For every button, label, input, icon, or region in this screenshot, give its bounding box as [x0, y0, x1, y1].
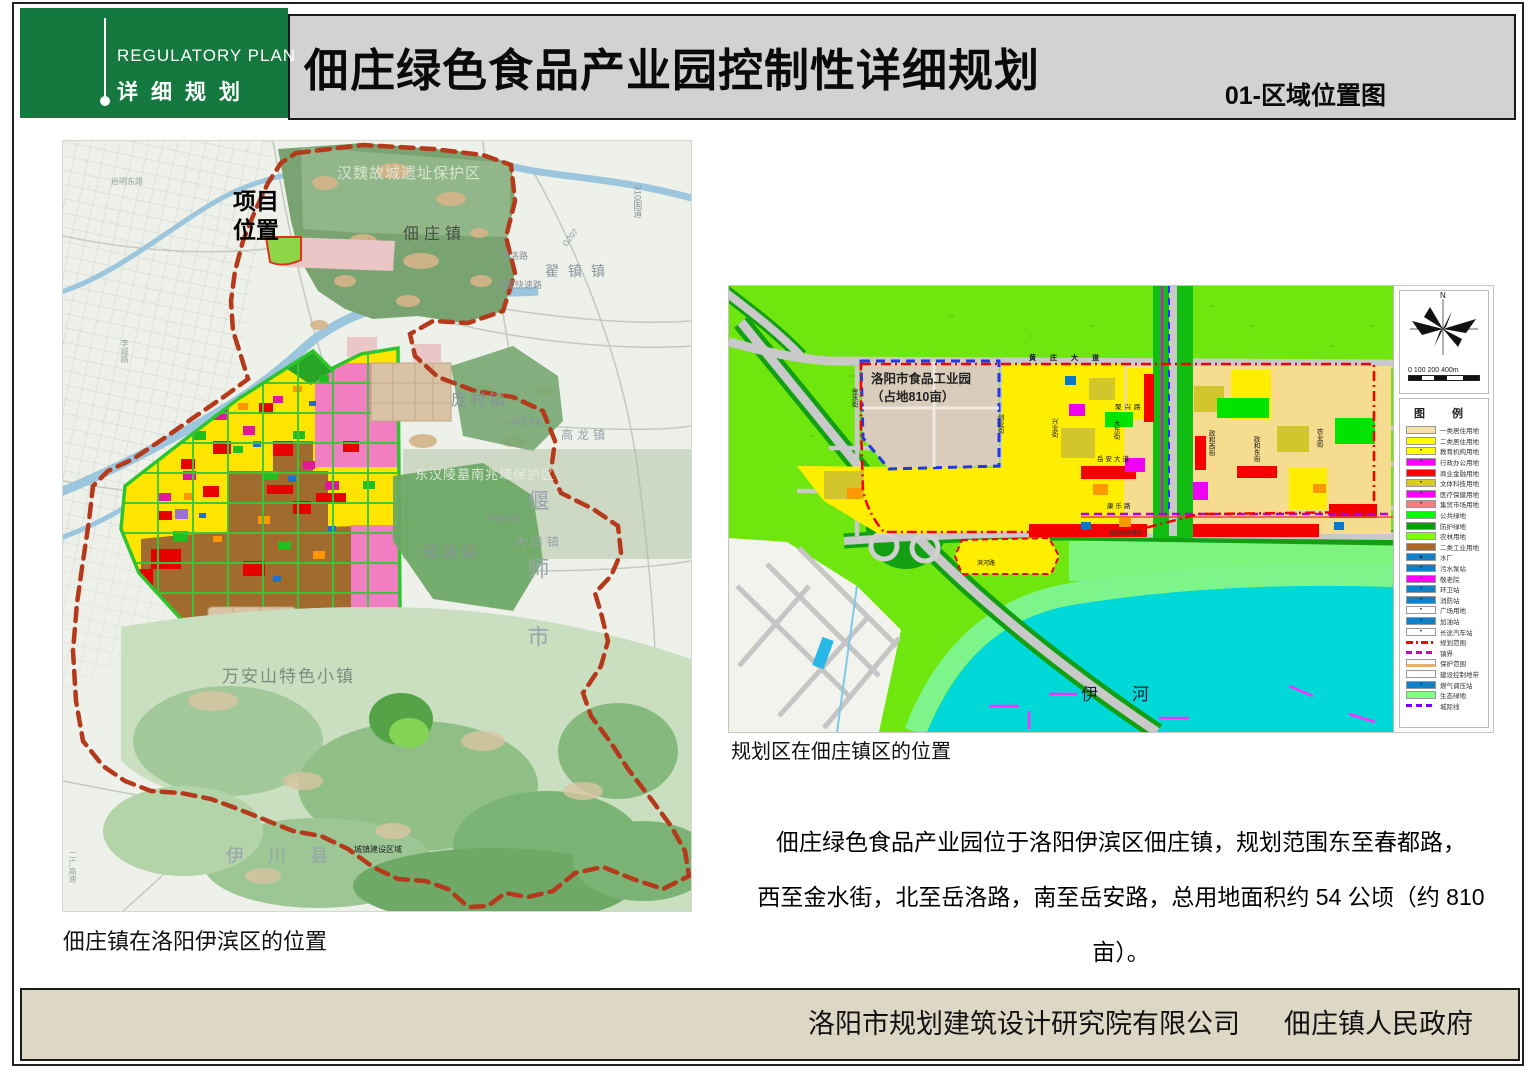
logo-divider-line — [104, 18, 106, 98]
north-arrow-icon — [1400, 291, 1486, 361]
label-gaotie-avenue: 高铁大道 — [511, 417, 543, 427]
legend-swatch — [1406, 511, 1436, 519]
legend-item: 二类居住用地 — [1400, 436, 1488, 447]
legend-item: 城际线 — [1400, 700, 1488, 711]
legend-swatch: • — [1406, 617, 1436, 625]
label-g310: 310国道 — [631, 185, 642, 218]
legend-item: 防护绿地 — [1400, 520, 1488, 531]
legend-label: 农林用地 — [1440, 531, 1466, 541]
label-licheng-road: 李城路 — [119, 339, 129, 363]
legend-item: •文体科技用地 — [1400, 478, 1488, 489]
label-yuean-avenue: 岳安大道 — [1097, 456, 1131, 464]
legend-box: 图 例 一类居住用地二类居住用地•教育机构用地•行政办公用地商业金融用地•文体科… — [1399, 398, 1489, 728]
label-dadong-street: 大东街 — [1111, 420, 1119, 440]
legend-item: 公共绿地 — [1400, 510, 1488, 521]
legend-swatch — [1406, 651, 1436, 654]
legend-label: 教育机构用地 — [1440, 446, 1479, 456]
plan-sheet: REGULATORY PLAN 详细规划 佃庄绿色食品产业园控制性详细规划 01… — [0, 0, 1529, 1080]
legend-label: 一类居住用地 — [1440, 425, 1479, 435]
legend-label: 行政办公用地 — [1440, 457, 1479, 467]
legend-swatch: • — [1406, 606, 1436, 614]
legend-item: 二类工业用地 — [1400, 542, 1488, 553]
legend-item: •集贸市场用地 — [1400, 499, 1488, 510]
description-line2: 西至金水街，北至岳洛路，南至岳安路，总用地面积约 54 公顷（约 810 亩）。 — [728, 870, 1514, 980]
right-map-caption: 规划区在佃庄镇区的位置 — [731, 735, 951, 764]
label-jinshui-street: 金水街 — [849, 388, 857, 408]
binhe-block — [955, 538, 1059, 574]
label-huangzhuang-avenue: 黄庄大道 — [1029, 355, 1113, 364]
legend-label: 二类居住用地 — [1440, 436, 1479, 446]
label-luoyan-expressway: 洛偃快速路 — [497, 280, 542, 291]
town-location-map: 洛阳市食品工业园 （占地810亩） 伊 河 黄庄大道 聚兴路 岳安大道 康乐路 … — [728, 285, 1494, 733]
label-yi-river: 伊 河 — [1081, 684, 1149, 705]
label-wananshan-town: 万安山特色小镇 — [222, 666, 355, 687]
legend-label: 长途汽车站 — [1440, 627, 1473, 637]
legend-swatch — [1406, 641, 1436, 644]
legend-label: 镇界 — [1440, 648, 1453, 658]
footer-credits: 洛阳市规划建筑设计研究院有限公司佃庄镇人民政府 — [808, 990, 1473, 1059]
legend-swatch — [1406, 543, 1436, 551]
legend-items: 一类居住用地二类居住用地•教育机构用地•行政办公用地商业金融用地•文体科技用地•… — [1400, 425, 1488, 711]
design-institute: 洛阳市规划建筑设计研究院有限公司 — [808, 1009, 1240, 1039]
legend-label: 文体科技用地 — [1440, 478, 1479, 488]
label-binhe-road: 滨河路 — [977, 561, 995, 569]
label-town-construction-line: 城镇建设区域 — [354, 845, 402, 855]
legend-label: 敬老院 — [1440, 574, 1460, 584]
description-line1: 佃庄绿色食品产业园位于洛阳伊滨区佃庄镇，规划范围东至春都路， — [728, 815, 1514, 870]
legend-label: 商业金融用地 — [1440, 468, 1479, 478]
legend-item: •长途汽车站 — [1400, 626, 1488, 637]
logo-english: REGULATORY PLAN — [117, 46, 296, 66]
logo-chinese: 详细规划 — [117, 76, 253, 106]
label-nongye-street: 农业街 — [1314, 428, 1322, 448]
legend-label: 生态绿地 — [1440, 690, 1466, 700]
scale-bar: 0 100 200 400m — [1408, 367, 1480, 381]
label-chuangye-street: 创业街 — [995, 414, 1003, 434]
label-project-location: 项目位置 — [233, 187, 293, 245]
legend-item: ▲水厂 — [1400, 552, 1488, 563]
legend-label: 城际线 — [1440, 701, 1460, 711]
legend-swatch — [1406, 469, 1436, 477]
legend-label: 加油站 — [1440, 616, 1460, 626]
logo-box: REGULATORY PLAN 详细规划 — [20, 8, 288, 118]
label-gaolong-town: 高龙镇 — [561, 428, 609, 443]
label-zhenghe-west-street: 政和西街 — [1206, 430, 1214, 456]
legend-swatch — [1406, 670, 1436, 678]
label-industrial-park-area: （占地810亩） — [871, 390, 954, 406]
legend-item: 规划范围 — [1400, 637, 1488, 648]
legend-swatch: • — [1406, 479, 1436, 487]
legend-item: •污水泵站 — [1400, 563, 1488, 574]
label-xingye-street: 兴业街 — [1049, 418, 1057, 438]
label-yichuan-county: 伊川县 — [226, 845, 352, 868]
legend-label: 水厂 — [1440, 552, 1453, 562]
legend-swatch: • — [1406, 500, 1436, 508]
legend-item: 镇界 — [1400, 647, 1488, 658]
legend-item: 商业金融用地 — [1400, 467, 1488, 478]
legend-item: •广场用地 — [1400, 605, 1488, 616]
legend-swatch: • — [1406, 596, 1436, 604]
label-pangcun-town: 庞村镇 — [451, 391, 508, 411]
legend-label: 污水泵站 — [1440, 563, 1466, 573]
legend-item: 生态绿地 — [1400, 690, 1488, 701]
label-industrial-park-name: 洛阳市食品工业园 — [871, 372, 971, 388]
legend-item: •环卫站 — [1400, 584, 1488, 595]
legend-item: 建设控制地带 — [1400, 669, 1488, 680]
legend-label: 规划范围 — [1440, 637, 1466, 647]
page-title: 佃庄绿色食品产业园控制性详细规划 — [304, 16, 1040, 120]
north-label: N — [1440, 291, 1446, 300]
label-hanwei-site: 汉魏故城遗址保护区 — [337, 165, 481, 184]
legend-swatch: • — [1406, 628, 1436, 636]
legend-item: 保护范围 — [1400, 658, 1488, 669]
label-yanshi-city: 偃师市 — [523, 489, 551, 689]
regional-location-map: 项目位置 汉魏故城遗址保护区 佃庄镇 翟镇镇 岳洛路 洛偃快速路 庞村镇 高龙镇… — [62, 140, 692, 912]
legend-swatch — [1406, 426, 1436, 434]
legend-swatch: • — [1406, 585, 1436, 593]
legend-item: •敬老院 — [1400, 573, 1488, 584]
legend-item: •加油站 — [1400, 616, 1488, 627]
town-government: 佃庄镇人民政府 — [1284, 1009, 1473, 1039]
label-qiming-east-road: 启明东路 — [111, 177, 143, 187]
footer-bar: 洛阳市规划建筑设计研究院有限公司佃庄镇人民政府 — [20, 988, 1520, 1061]
legend-item: •医疗保健用地 — [1400, 489, 1488, 500]
legend-label: 防护绿地 — [1440, 521, 1466, 531]
label-yueluo-road: 岳洛路 — [501, 251, 528, 262]
legend-label: 消防站 — [1440, 595, 1460, 605]
legend-swatch — [1406, 691, 1436, 699]
left-map-caption: 佃庄镇在洛阳伊滨区的位置 — [63, 924, 327, 956]
legend-swatch — [1406, 532, 1436, 540]
regional-map-graphic — [63, 141, 691, 911]
legend-label: 集贸市场用地 — [1440, 499, 1479, 509]
label-intercity-expressway: 城际快速通道 — [1109, 531, 1142, 538]
legend-swatch: • — [1406, 490, 1436, 498]
label-kangle-road: 康乐路 — [1107, 503, 1133, 511]
label-koudian-town: 寇店镇 — [423, 543, 480, 563]
legend-label: 环卫站 — [1440, 584, 1460, 594]
legend-label: 建设控制地带 — [1440, 669, 1479, 679]
legend-label: 广场用地 — [1440, 605, 1466, 615]
label-zhaizhen-town: 翟镇镇 — [545, 263, 614, 281]
label-donghan-tombs: 东汉陵墓南兆域保护区 — [415, 467, 555, 483]
label-erguang-expressway: 二广高速 — [67, 851, 77, 883]
compass-box: N 0 100 200 400m — [1399, 290, 1489, 394]
logo-dot — [100, 96, 110, 106]
legend-swatch: • — [1406, 681, 1436, 689]
legend-swatch: • — [1406, 564, 1436, 572]
legend-swatch — [1406, 704, 1436, 707]
label-juxing-road: 聚兴路 — [1115, 404, 1144, 412]
legend-panel: N 0 100 200 400m 图 例 一类居住用地二类居住用地•教育机构用地… — [1393, 286, 1494, 732]
legend-swatch: ▲ — [1406, 553, 1436, 561]
legend-label: 保护范围 — [1440, 658, 1466, 668]
legend-item: •教育机构用地 — [1400, 446, 1488, 457]
legend-item: 农林用地 — [1400, 531, 1488, 542]
label-zhenghe-east-street: 政和东街 — [1251, 436, 1259, 462]
legend-swatch: • — [1406, 458, 1436, 466]
legend-item: •行政办公用地 — [1400, 457, 1488, 468]
label-dianzhuang-town: 佃庄镇 — [403, 225, 466, 245]
legend-swatch — [1406, 659, 1436, 667]
legend-item: •消防站 — [1400, 595, 1488, 606]
legend-label: 燃气调压站 — [1440, 680, 1473, 690]
legend-label: 公共绿地 — [1440, 510, 1466, 520]
legend-title: 图 例 — [1414, 405, 1488, 421]
legend-swatch — [1406, 522, 1436, 530]
legend-swatch — [1406, 437, 1436, 445]
description-paragraph: 佃庄绿色食品产业园位于洛阳伊滨区佃庄镇，规划范围东至春都路， 西至金水街，北至岳… — [728, 815, 1514, 980]
scale-text: 0 100 200 400m — [1408, 367, 1480, 374]
legend-label: 二类工业用地 — [1440, 542, 1479, 552]
legend-item: 一类居住用地 — [1400, 425, 1488, 436]
label-dakou-town: 大口镇 — [515, 535, 563, 550]
legend-swatch: • — [1406, 575, 1436, 583]
title-bar: 佃庄绿色食品产业园控制性详细规划 01-区域位置图 — [288, 14, 1516, 120]
legend-label: 医疗保健用地 — [1440, 489, 1479, 499]
legend-item: •燃气调压站 — [1400, 679, 1488, 690]
label-keji-avenue: 科技大道 — [487, 514, 519, 524]
sheet-number: 01-区域位置图 — [1225, 76, 1386, 112]
legend-swatch: • — [1406, 447, 1436, 455]
